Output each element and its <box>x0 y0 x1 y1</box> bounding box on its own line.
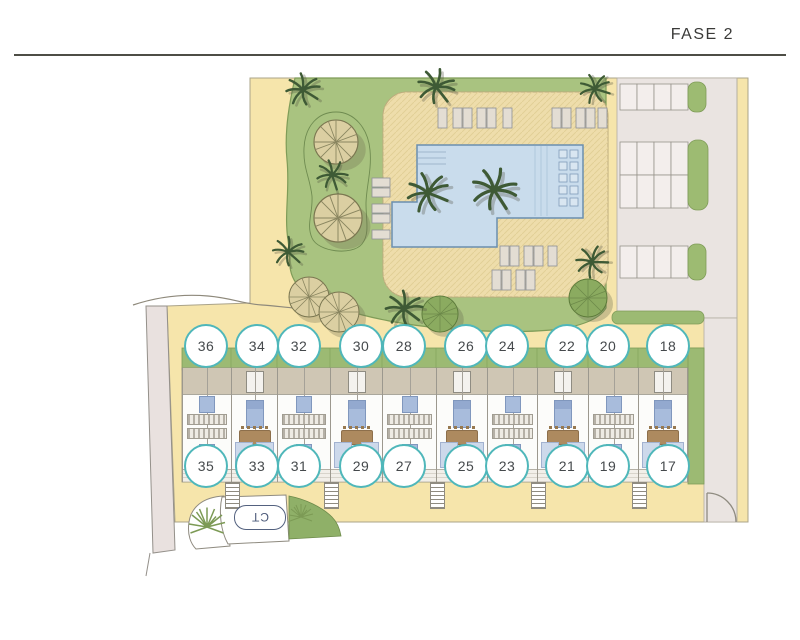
plan-overlay: 3634323028262422201835333129272523211917 <box>0 0 800 640</box>
entry-stair <box>531 482 546 509</box>
stairwell <box>654 400 672 428</box>
unit-badge-28[interactable]: 28 <box>382 324 426 368</box>
stairwell <box>554 400 572 428</box>
unit-badge-23[interactable]: 23 <box>485 444 529 488</box>
unit-badge-20[interactable]: 20 <box>586 324 630 368</box>
unit-badge-34[interactable]: 34 <box>235 324 279 368</box>
unit-badge-25[interactable]: 25 <box>444 444 488 488</box>
entry-stair <box>632 482 647 509</box>
stairwell <box>348 400 366 428</box>
balcony-rail <box>187 428 227 439</box>
entry-stair <box>225 482 240 509</box>
stairwell <box>453 400 471 428</box>
balcony-rail <box>492 428 533 439</box>
balcony <box>606 396 622 413</box>
balcony-rail <box>282 414 326 425</box>
master-plan: 3634323028262422201835333129272523211917… <box>0 0 800 640</box>
unit-badge-36[interactable]: 36 <box>184 324 228 368</box>
unit-badge-19[interactable]: 19 <box>586 444 630 488</box>
unit-badge-24[interactable]: 24 <box>485 324 529 368</box>
balcony <box>199 396 215 413</box>
balcony-rail <box>593 414 634 425</box>
stairwell <box>246 400 264 428</box>
entry-stair <box>324 482 339 509</box>
balcony-rail <box>492 414 533 425</box>
unit-badge-32[interactable]: 32 <box>277 324 321 368</box>
unit-badge-27[interactable]: 27 <box>382 444 426 488</box>
balcony <box>296 396 312 413</box>
entry-stair <box>430 482 445 509</box>
balcony-rail <box>387 414 432 425</box>
balcony-rail <box>187 414 227 425</box>
transformer-label: CT <box>234 505 286 530</box>
balcony <box>402 396 418 413</box>
balcony-rail <box>387 428 432 439</box>
unit-badge-35[interactable]: 35 <box>184 444 228 488</box>
balcony-rail <box>593 428 634 439</box>
unit-badge-21[interactable]: 21 <box>545 444 589 488</box>
balcony <box>505 396 521 413</box>
unit-badge-17[interactable]: 17 <box>646 444 690 488</box>
balcony-rail <box>282 428 326 439</box>
unit-badge-29[interactable]: 29 <box>339 444 383 488</box>
unit-badge-26[interactable]: 26 <box>444 324 488 368</box>
site-plan-page: FASE 2 <box>0 0 800 640</box>
unit-badge-31[interactable]: 31 <box>277 444 321 488</box>
unit-badge-30[interactable]: 30 <box>339 324 383 368</box>
unit-badge-33[interactable]: 33 <box>235 444 279 488</box>
unit-badge-18[interactable]: 18 <box>646 324 690 368</box>
unit-badge-22[interactable]: 22 <box>545 324 589 368</box>
